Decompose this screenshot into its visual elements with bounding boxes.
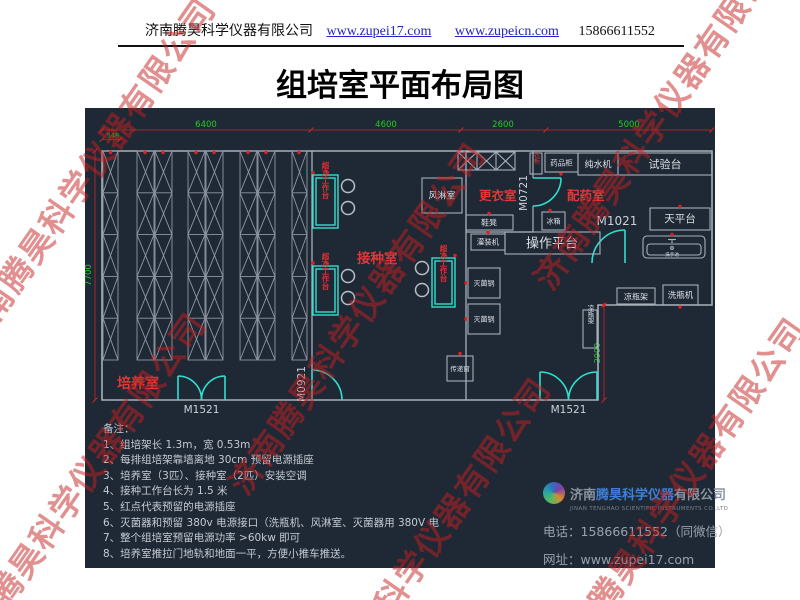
note-item: 5、红点代表预留的电源插座 [103,500,439,515]
medicine-cabinet-label: 药品柜 [550,158,573,168]
brand-block: 济南腾昊科学仪器有限公司 JINAN TENGHAO SCIENTIFIC IN… [543,482,713,568]
dim-5000: 5000 [618,120,640,130]
sterilizer-label-1: 灭菌锅 [474,279,495,288]
room-label-culture: 培养室 [117,375,159,392]
stools [342,180,429,305]
brand-phone-line: 电话：15866611552（同微信） [543,521,713,540]
note-item: 8、培养室推拉门地轨和地面一平，方便小推车推送。 [103,547,439,562]
double-door-left [178,376,225,400]
note-item: 6、灭菌器和预留 380v 电源接口（洗瓶机、风淋室、灭菌器用 380V 电 [103,516,439,531]
bottle-washer-label: 洗瓶机 [668,290,694,301]
door-m0721 [533,178,561,206]
brand-company-name: 济南腾昊科学仪器有限公司 [570,484,726,503]
bottle-cool-rack-label: 凉瓶架 [624,292,648,302]
brand-name-pre: 济南 [570,488,596,503]
sink-label: 洗手池 [665,251,679,258]
note-item: 1、组培架长 1.3m，宽 0.53m [103,438,439,453]
door-label-m1521-left: M1521 [184,404,220,416]
page-header: 济南腾昊科学仪器有限公司 www.zupei17.com www.zupeicn… [0,20,800,40]
operation-platform-label: 操作平台 [526,236,578,252]
room-label-inoculation: 接种室 [357,250,398,267]
fridge-label: 冰箱 [547,217,561,226]
brand-web-value[interactable]: www.zupei17.com [581,552,695,567]
double-door-right [540,372,597,400]
test-bench-label: 试验台 [649,157,682,171]
filling-machine-label: 灌装机 [477,237,500,247]
note-item: 7、整个组培室预留电源功率 >60kw 即可 [103,531,439,546]
door-m1021 [592,230,625,263]
notes: 备注： 1、组培架长 1.3m，宽 0.53m 2、每排组培架靠墙离地 30cm… [103,422,439,562]
door-label-m1521-right: M1521 [551,404,587,416]
header-link-zupeicn[interactable]: www.zupeicn.com [455,24,559,39]
clean-bench-label-3: 超净工作台 [439,243,448,283]
door-label-m0721: M0721 [518,175,530,211]
room-label-dispensing: 配药室 [567,188,605,203]
door-m0921 [312,370,342,400]
wardrobe-label: 衣柜 [533,151,540,165]
note-item: 2、每排组培架靠墙离地 30cm 预留电源插座 [103,453,439,468]
header-company: 济南腾昊科学仪器有限公司 [145,24,313,39]
note-item: 4、接种工作台长为 1.5 米 [103,484,439,499]
outer-wall [102,151,712,400]
dimension-lines [93,128,715,403]
brand-phone-label: 电话： [543,524,581,539]
dim-7700: 7700 [85,264,94,286]
header-divider [118,45,684,47]
clean-bench-label-2: 超净工作台 [321,251,330,291]
room-label-changing: 更衣室 [479,188,517,203]
company-logo-icon [543,482,565,504]
clean-bench-labels: 超净工作台 超净工作台 超净工作台 [321,160,448,291]
brand-phone-value: 15866611552（同微信） [581,524,731,539]
header-phone: 15866611552 [578,24,654,39]
balance-table-label: 天平台 [664,212,696,225]
note-item: 3、培养室（3匹）、接种室（2匹）安装空调 [103,469,439,484]
tissue-culture-racks [103,151,307,360]
clean-bench-label-1: 超净工作台 [321,160,330,200]
room-labels: 培养室 接种室 更衣室 配药室 [117,188,605,392]
sterilizer-label-2: 灭菌锅 [474,315,495,324]
door-labels: M1521 M1521 M0921 M0721 M1021 [184,175,638,416]
brand-web-line: 网址：www.zupei17.com [543,549,713,568]
brand-name-mid: 腾昊科学仪器 [596,488,674,503]
shoe-bench-label: 鞋凳 [481,218,497,228]
equipment-labels: 衣柜 药品柜 纯水机 试验台 风淋室 鞋凳 冰箱 天平台 灌装机 操作平台 洗手… [428,151,695,373]
header-link-zupei17[interactable]: www.zupei17.com [327,24,432,39]
door-label-m1021: M1021 [597,214,638,228]
pure-water-machine-label: 纯水机 [584,159,611,171]
brand-web-label: 网址： [543,552,581,567]
pass-window-label: 传递窗 [450,364,470,373]
brand-name-suf: 有限公司 [674,488,726,503]
bottle-cool-rack-vertical-label: 凉瓶架 [586,303,594,325]
page-title: 组培室平面布局图 [0,60,800,105]
notes-title: 备注： [103,422,439,437]
walls [102,151,712,400]
dim-548: 548 [107,132,119,140]
page: 济南腾昊科学仪器有限公司 www.zupei17.com www.zupeicn… [0,0,800,600]
brand-company-name-en: JINAN TENGHAO SCIENTIFIC INSTRUMENTS CO.… [570,506,713,512]
air-shower-label: 风淋室 [428,190,455,202]
dim-4600: 4600 [375,120,397,130]
floorplan-drawing: 6400 4600 2600 5000 548 7700 2900 [85,108,715,420]
cad-panel: 6400 4600 2600 5000 548 7700 2900 [85,108,715,568]
dim-6400: 6400 [195,120,217,130]
door-label-m0921: M0921 [296,366,308,402]
dim-2600: 2600 [492,120,514,130]
